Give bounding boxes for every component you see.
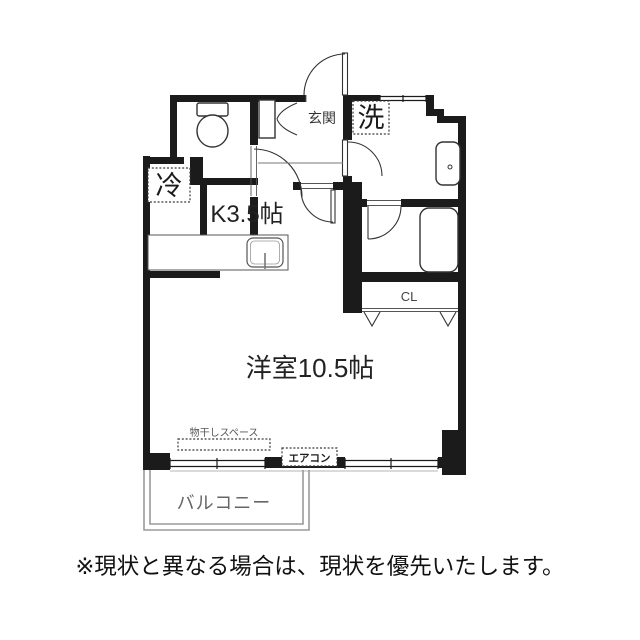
window-bottom-right xyxy=(345,458,438,469)
entrance-label: 玄関 xyxy=(308,110,336,126)
kitchen-door-arc xyxy=(301,184,335,224)
entrance-door-arc xyxy=(304,53,348,102)
bathroom-door-arc xyxy=(367,201,401,240)
washer-label: 洗 xyxy=(358,103,385,133)
aircon-label: エアコン xyxy=(289,453,331,465)
window-bottom-left xyxy=(170,458,265,469)
washbasin-icon xyxy=(436,142,460,185)
toilet-icon xyxy=(197,103,228,147)
floor-plan-page: 冷 洗 物干しスペース エアコン バルコニー 玄関 K3.5帖 洋室10.5帖 … xyxy=(0,0,640,640)
fridge-label: 冷 xyxy=(156,171,183,201)
drying-space-label: 物干しスペース xyxy=(190,426,259,439)
kitchen-label: K3.5帖 xyxy=(210,201,283,228)
washer-space: 洗 xyxy=(353,101,389,134)
fridge-space: 冷 xyxy=(148,168,190,202)
drying-space: 物干しスペース xyxy=(178,426,270,450)
floor-plan: 冷 洗 物干しスペース エアコン バルコニー 玄関 K3.5帖 洋室10.5帖 … xyxy=(0,0,640,640)
shoe-cabinet-icon xyxy=(259,100,297,138)
balcony-outline: バルコニー xyxy=(144,470,309,530)
kitchen-sink-icon xyxy=(247,238,283,269)
aircon-unit: エアコン xyxy=(282,448,337,466)
window-top xyxy=(380,95,426,102)
walls xyxy=(143,95,466,475)
washroom-door-arc xyxy=(343,140,383,176)
kitchen-counter xyxy=(148,235,288,270)
closet-fold-doors-icon xyxy=(362,309,458,327)
closet-label: CL xyxy=(401,289,418,304)
balcony-label: バルコニー xyxy=(177,493,272,513)
disclaimer-text: ※現状と異なる場合は、現状を優先いたします。 xyxy=(75,554,564,579)
bathtub-icon xyxy=(420,208,458,272)
main-room-label: 洋室10.5帖 xyxy=(246,353,375,383)
